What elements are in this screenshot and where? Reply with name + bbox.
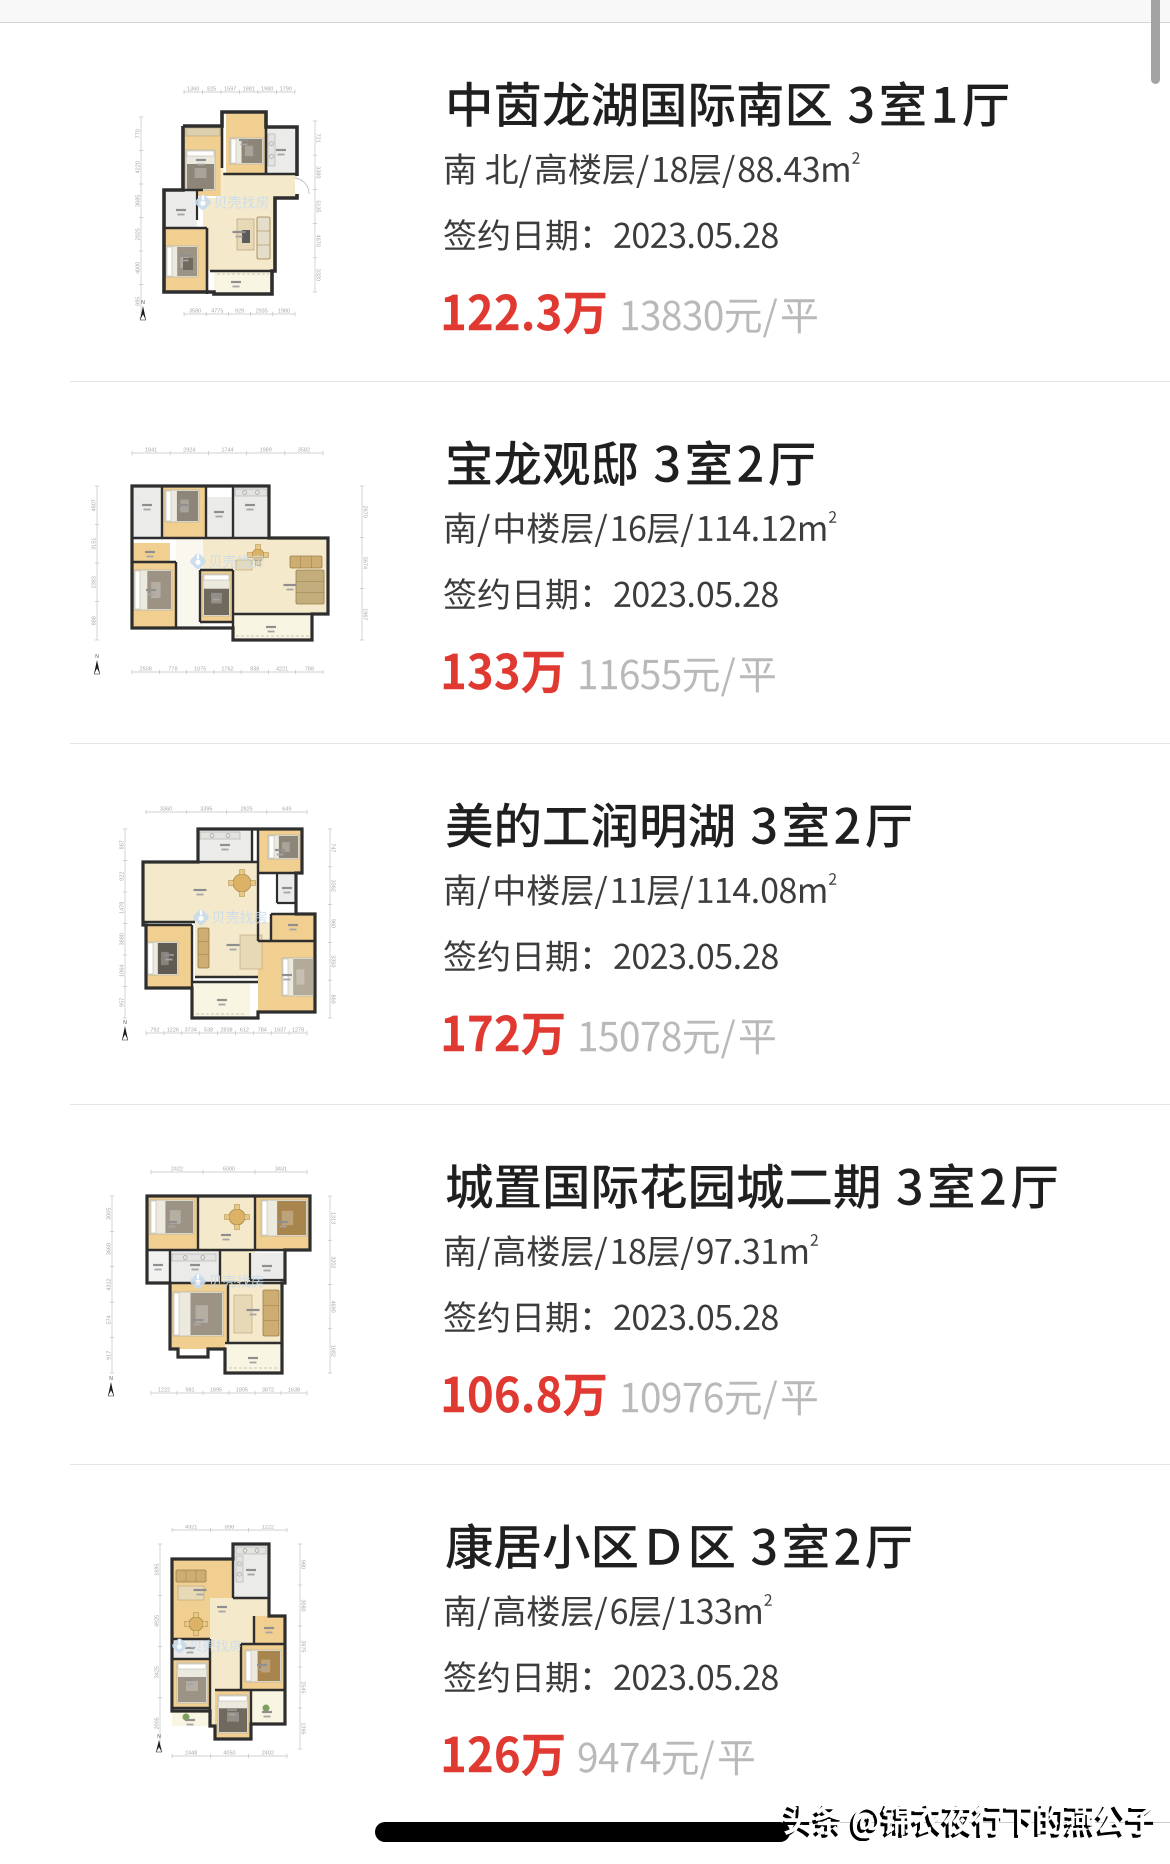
svg-text:4050: 4050 <box>223 1751 235 1757</box>
svg-text:6000: 6000 <box>223 1167 235 1173</box>
svg-text:1638: 1638 <box>288 1388 300 1394</box>
svg-text:3362: 3362 <box>330 880 336 892</box>
svg-text:898: 898 <box>225 1525 234 1531</box>
svg-text:2422: 2422 <box>171 1167 183 1173</box>
svg-text:1360: 1360 <box>187 87 199 93</box>
svg-text:1226: 1226 <box>167 1028 179 1034</box>
svg-text:1637: 1637 <box>274 1028 286 1034</box>
svg-text:5674: 5674 <box>362 557 368 569</box>
svg-text:2383: 2383 <box>92 576 98 588</box>
svg-text:3360: 3360 <box>160 807 172 813</box>
svg-text:4807: 4807 <box>92 499 98 511</box>
svg-text:3005: 3005 <box>107 1208 113 1220</box>
svg-text:2825: 2825 <box>241 807 253 813</box>
svg-text:3151: 3151 <box>92 538 98 550</box>
svg-text:538: 538 <box>204 1028 213 1034</box>
svg-text:1744: 1744 <box>221 448 233 454</box>
svg-text:1841: 1841 <box>145 448 157 454</box>
svg-text:4670: 4670 <box>315 235 321 247</box>
svg-text:1313: 1313 <box>330 1212 336 1224</box>
svg-text:929: 929 <box>235 309 244 315</box>
svg-text:4921: 4921 <box>185 1525 197 1531</box>
svg-text:922: 922 <box>120 872 126 881</box>
svg-text:1695: 1695 <box>155 1564 161 1576</box>
svg-text:2670: 2670 <box>362 506 368 518</box>
svg-text:747: 747 <box>330 843 336 852</box>
svg-text:1597: 1597 <box>224 87 236 93</box>
svg-text:2935: 2935 <box>256 309 268 315</box>
svg-text:1981: 1981 <box>243 87 255 93</box>
svg-text:1762: 1762 <box>221 667 233 673</box>
svg-text:1682: 1682 <box>330 1345 336 1357</box>
svg-text:838: 838 <box>250 667 259 673</box>
svg-text:574: 574 <box>107 1315 113 1324</box>
svg-text:1395: 1395 <box>300 1722 306 1734</box>
svg-text:3880: 3880 <box>120 933 126 945</box>
svg-text:N: N <box>95 654 99 660</box>
svg-text:1790: 1790 <box>280 87 292 93</box>
svg-text:2838: 2838 <box>220 1028 232 1034</box>
svg-text:1805: 1805 <box>236 1388 248 1394</box>
svg-text:3425: 3425 <box>155 1666 161 1678</box>
svg-text:3350: 3350 <box>330 955 336 967</box>
svg-text:770: 770 <box>136 129 142 138</box>
svg-text:3660: 3660 <box>107 1243 113 1255</box>
svg-text:3380: 3380 <box>315 166 321 178</box>
svg-text:825: 825 <box>207 87 216 93</box>
svg-text:3975: 3975 <box>300 1640 306 1652</box>
svg-text:1075: 1075 <box>194 667 206 673</box>
svg-text:4220: 4220 <box>136 161 142 173</box>
svg-text:N: N <box>141 300 145 306</box>
svg-text:3580: 3580 <box>189 309 201 315</box>
svg-text:980: 980 <box>300 1560 306 1569</box>
svg-text:4775: 4775 <box>211 309 223 315</box>
svg-text:2448: 2448 <box>185 1751 197 1757</box>
svg-text:3872: 3872 <box>262 1388 274 1394</box>
svg-text:N: N <box>109 1376 113 1382</box>
svg-text:1222: 1222 <box>158 1388 170 1394</box>
svg-text:721: 721 <box>315 134 321 143</box>
svg-text:1222: 1222 <box>262 1525 274 1531</box>
svg-text:4925: 4925 <box>155 1615 161 1627</box>
svg-text:5135: 5135 <box>315 200 321 212</box>
svg-text:4221: 4221 <box>276 667 288 673</box>
svg-text:2924: 2924 <box>183 448 195 454</box>
svg-text:3320: 3320 <box>315 269 321 281</box>
svg-text:960: 960 <box>330 919 336 928</box>
svg-text:4000: 4000 <box>136 262 142 274</box>
svg-text:3582: 3582 <box>298 448 310 454</box>
svg-text:784: 784 <box>258 1028 267 1034</box>
svg-text:778: 778 <box>168 667 177 673</box>
svg-text:N: N <box>157 1734 161 1740</box>
svg-text:867: 867 <box>120 840 126 849</box>
svg-text:2025: 2025 <box>136 228 142 240</box>
svg-text:957: 957 <box>120 998 126 1007</box>
svg-text:788: 788 <box>305 667 314 673</box>
svg-text:2545: 2545 <box>300 1681 306 1693</box>
svg-text:1278: 1278 <box>292 1028 304 1034</box>
svg-text:649: 649 <box>282 807 291 813</box>
svg-text:3395: 3395 <box>200 807 212 813</box>
svg-text:3734: 3734 <box>185 1028 197 1034</box>
svg-text:981: 981 <box>185 1388 194 1394</box>
svg-text:868: 868 <box>92 616 98 625</box>
svg-text:3202: 3202 <box>330 1256 336 1268</box>
svg-text:2402: 2402 <box>262 1751 274 1757</box>
svg-text:612: 612 <box>240 1028 249 1034</box>
svg-text:1967: 1967 <box>362 608 368 620</box>
svg-text:1989: 1989 <box>260 448 272 454</box>
svg-text:3685: 3685 <box>136 195 142 207</box>
svg-text:4690: 4690 <box>330 1301 336 1313</box>
svg-text:1980: 1980 <box>261 87 273 93</box>
svg-text:1895: 1895 <box>210 1388 222 1394</box>
svg-text:N: N <box>123 1020 127 1026</box>
svg-text:1478: 1478 <box>120 902 126 914</box>
svg-text:3431: 3431 <box>275 1167 287 1173</box>
svg-text:1980: 1980 <box>278 309 290 315</box>
svg-text:792: 792 <box>150 1028 159 1034</box>
svg-text:2508: 2508 <box>140 667 152 673</box>
svg-text:2005: 2005 <box>155 1717 161 1729</box>
svg-text:860: 860 <box>330 995 336 1004</box>
svg-text:3080: 3080 <box>300 1599 306 1611</box>
svg-text:4312: 4312 <box>107 1278 113 1290</box>
svg-text:917: 917 <box>107 1351 113 1360</box>
svg-text:1064: 1064 <box>120 965 126 977</box>
